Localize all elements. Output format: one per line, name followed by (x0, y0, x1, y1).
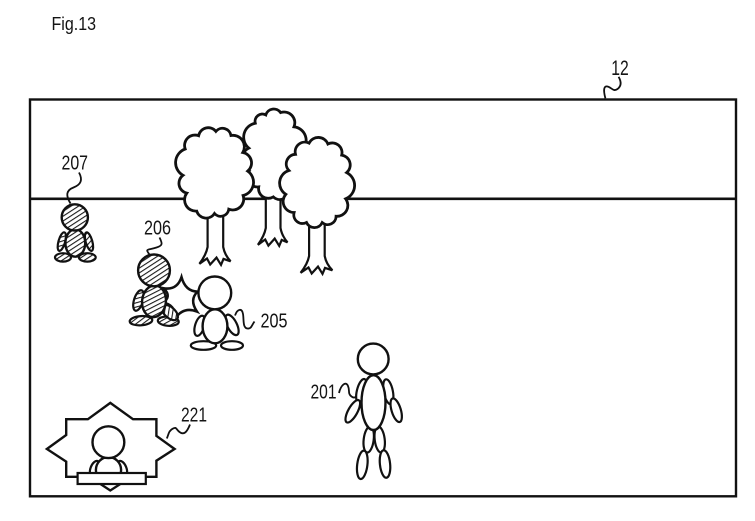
svg-text:12: 12 (611, 57, 629, 80)
svg-text:207: 207 (62, 153, 89, 175)
svg-text:201: 201 (311, 382, 337, 404)
svg-text:206: 206 (144, 218, 171, 240)
svg-text:Fig.13: Fig.13 (52, 13, 97, 34)
svg-text:205: 205 (261, 311, 288, 333)
svg-text:221: 221 (181, 405, 207, 427)
